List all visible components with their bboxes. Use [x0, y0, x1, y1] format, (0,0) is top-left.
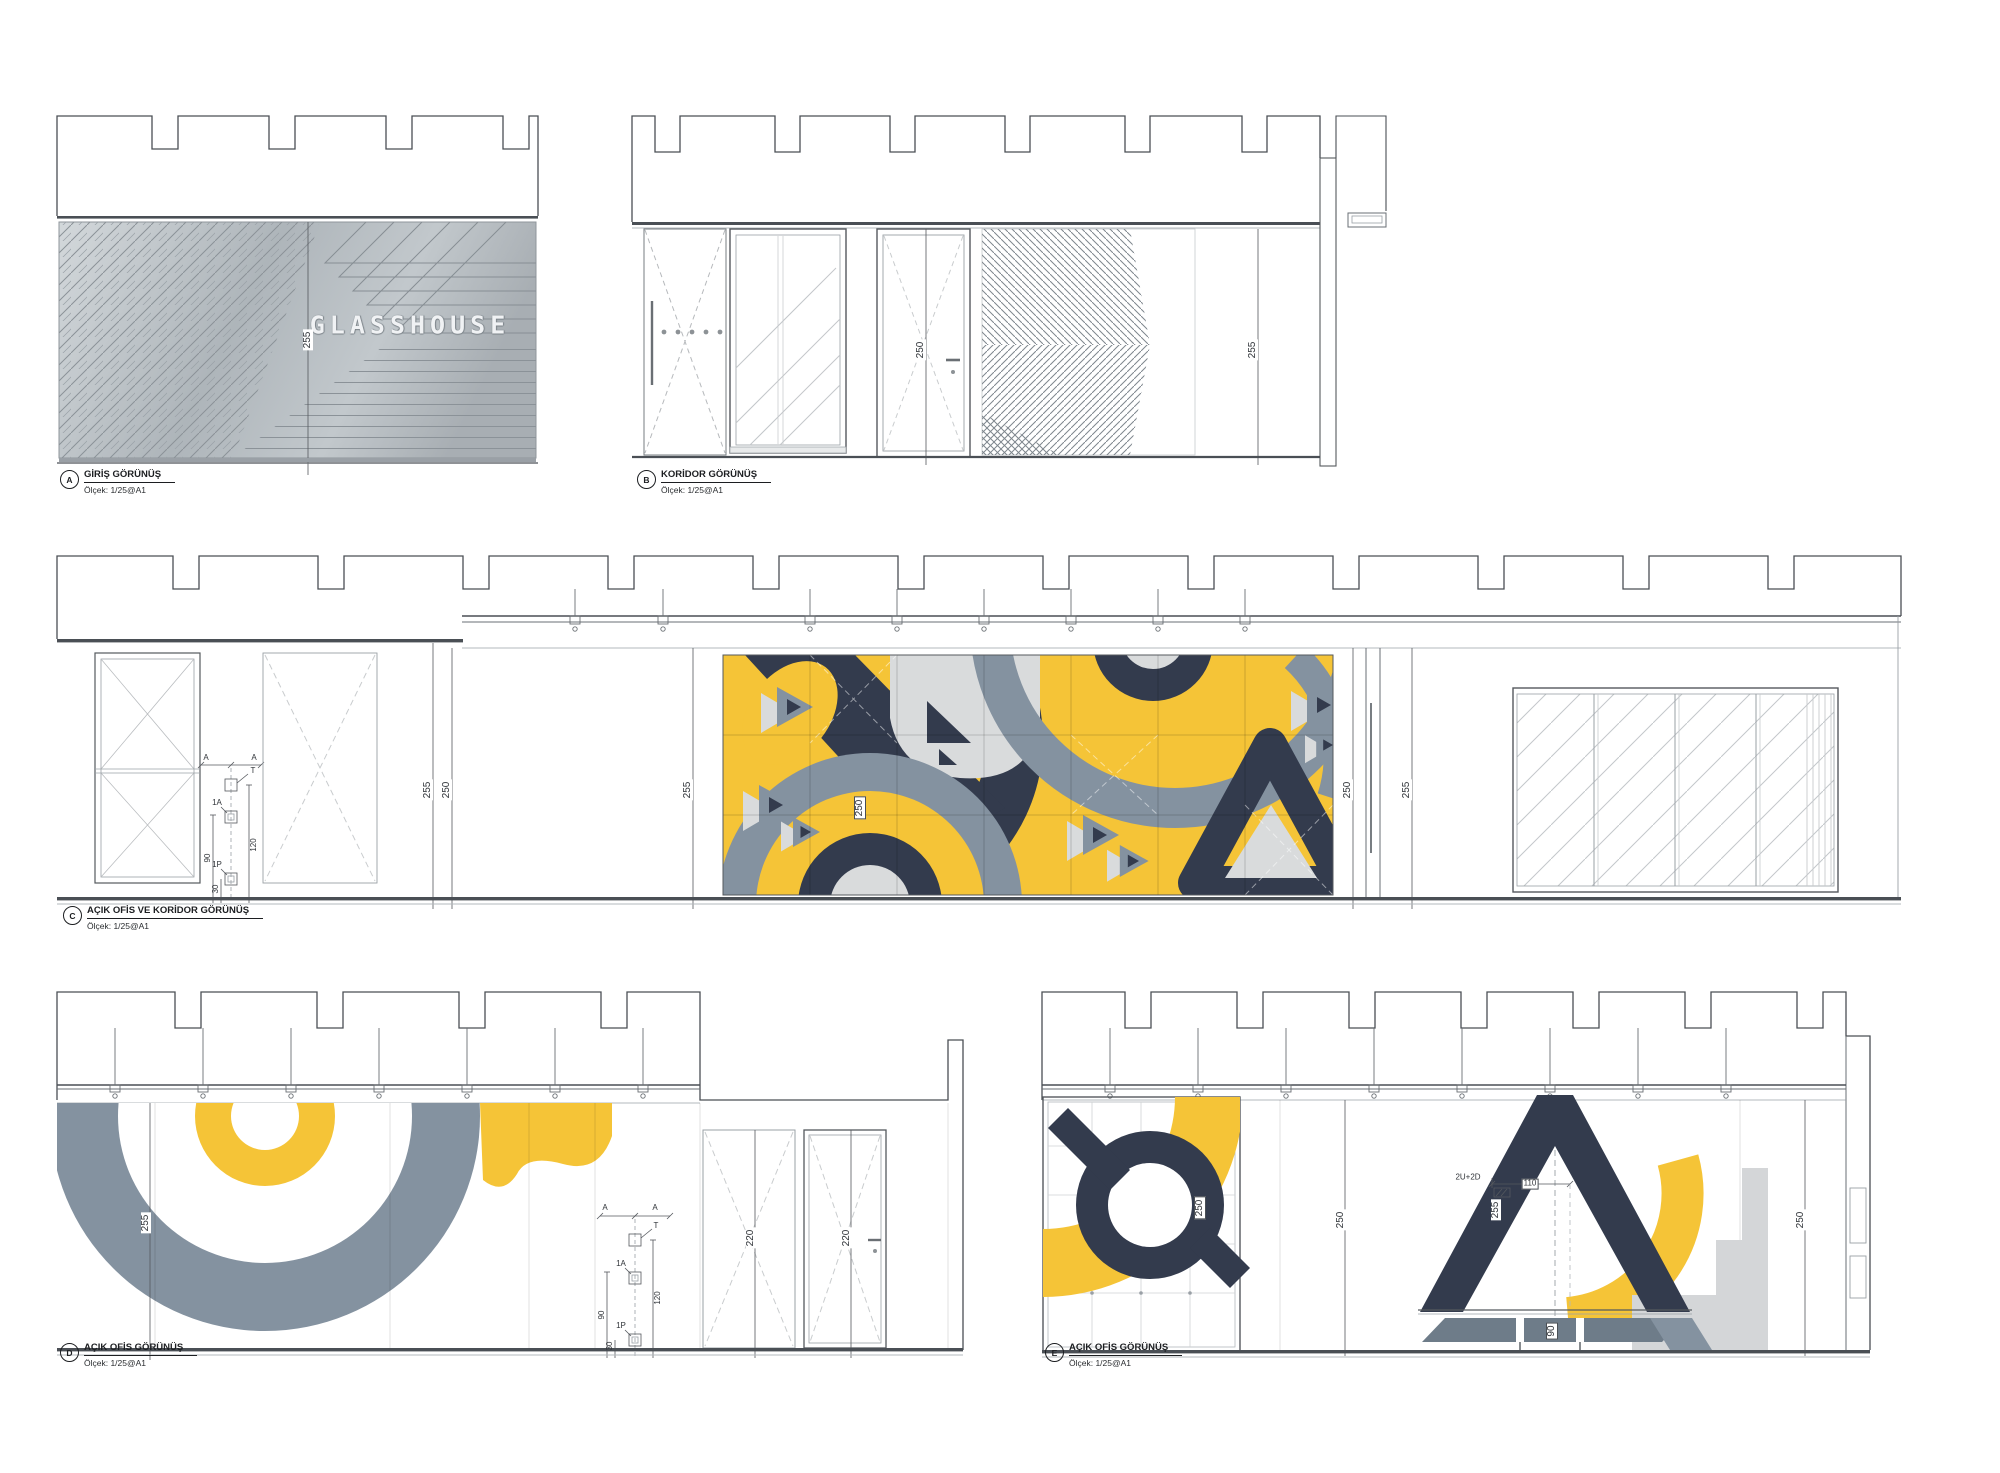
glass-door	[644, 229, 726, 455]
callout-label: T	[251, 767, 256, 775]
drawing-title: AÇIK OFİS GÖRÜNÜŞ	[1069, 1342, 1182, 1356]
parapet-right	[1336, 116, 1386, 211]
dim-label: 255	[1248, 340, 1258, 361]
dim-label: 255	[303, 330, 313, 351]
narrow-panel	[1366, 648, 1380, 897]
drawing-title: AÇIK OFİS GÖRÜNÜŞ	[84, 1342, 197, 1356]
storage-cabinet	[95, 653, 200, 883]
drawing-title: GİRİŞ GÖRÜNÜŞ	[84, 469, 175, 483]
fixture-callout	[597, 1213, 673, 1358]
callout-label: 1P	[616, 1322, 626, 1330]
parapet-outline	[57, 116, 538, 216]
title-block-b: B KORİDOR GÖRÜNÜŞ Ölçek: 1/25@A1	[637, 469, 771, 495]
title-block-c: C AÇIK OFİS VE KORİDOR GÖRÜNÜŞ Ölçek: 1/…	[63, 905, 263, 931]
title-block-d: D AÇIK OFİS GÖRÜNÜŞ Ölçek: 1/25@A1	[60, 1342, 197, 1368]
drawing-scale: Ölçek: 1/25@A1	[84, 1356, 197, 1368]
elevation-d: 255 220 220 A A T 1A 1P 120 90 30 D AÇIK…	[55, 988, 965, 1373]
dim-label: 250	[1194, 1197, 1206, 1220]
callout-dim: 120	[250, 838, 258, 851]
chevron-wall	[982, 229, 1195, 455]
callout-label: 1A	[212, 799, 222, 807]
callout-dim: 120	[654, 1291, 662, 1304]
dim-label: 255	[1402, 780, 1412, 801]
drawing-scale: Ölçek: 1/25@A1	[87, 919, 263, 931]
floor-strip	[59, 458, 536, 462]
glasshouse-sign: GLASSHOUSE	[310, 311, 511, 340]
drawing-scale: Ölçek: 1/25@A1	[1069, 1356, 1182, 1368]
mural	[718, 553, 1360, 938]
bracket	[1348, 213, 1386, 227]
dim-label: 250	[1336, 1210, 1346, 1231]
column	[1320, 158, 1336, 466]
ceiling-hangers	[1105, 1028, 1731, 1098]
pivot-panel	[263, 653, 377, 883]
dim-label: 250	[442, 780, 452, 801]
callout-dim: 90	[598, 1311, 606, 1320]
callout-label: T	[654, 1222, 659, 1230]
fixture-callout	[198, 762, 264, 903]
elevation-b: 250 255 B KORİDOR GÖRÜNÜŞ Ölçek: 1/25@A1	[630, 113, 1390, 493]
drawing-ref-badge: C	[63, 906, 82, 925]
ceiling-line	[57, 216, 538, 219]
dim-label: 250	[916, 340, 926, 361]
ceiling-hangers	[570, 589, 1250, 631]
ceiling-hangers	[110, 1028, 648, 1098]
dim-label: 255	[683, 780, 693, 801]
elevation-d-linework	[55, 988, 965, 1373]
drawing-title: AÇIK OFİS VE KORİDOR GÖRÜNÜŞ	[87, 905, 263, 919]
dim-label: 250	[854, 797, 866, 820]
callout-label: A	[251, 754, 256, 762]
callout-dim: 90	[204, 854, 212, 863]
glass-partition	[1513, 688, 1838, 892]
drawing-scale: Ölçek: 1/25@A1	[661, 483, 771, 495]
drawing-scale: Ölçek: 1/25@A1	[84, 483, 175, 495]
dim-label: 220	[746, 1228, 756, 1249]
title-block-e: E AÇIK OFİS GÖRÜNÜŞ Ölçek: 1/25@A1	[1045, 1342, 1182, 1368]
parapet-outline	[632, 116, 1320, 222]
drawing-title: KORİDOR GÖRÜNÜŞ	[661, 469, 771, 483]
elevation-sheet: GLASSHOUSE 255 A GİRİŞ GÖRÜNÜŞ Ölçek: 1/…	[0, 0, 2000, 1473]
drawing-ref-badge: A	[60, 470, 79, 489]
parapet-outline	[57, 556, 1901, 639]
ceiling-line	[632, 222, 1320, 225]
wall-mural	[55, 988, 948, 1348]
q-panel	[1043, 1097, 1250, 1352]
callout-dim: 30	[212, 885, 220, 894]
callout-label: 1A	[616, 1260, 626, 1268]
elevation-e: 250 250 255 2U+2D 110 90 250 E AÇIK OFİS…	[1040, 988, 1875, 1373]
dim-label: 90	[1546, 1322, 1558, 1339]
dim-label: 110	[1522, 1179, 1539, 1190]
callout-label: A	[652, 1204, 657, 1212]
drawing-ref-badge: D	[60, 1343, 79, 1362]
dim-label: 255	[423, 780, 433, 801]
elevation-c-linework	[55, 553, 1905, 938]
elevation-a: GLASSHOUSE 255 A GİRİŞ GÖRÜNÜŞ Ölçek: 1/…	[55, 113, 540, 493]
drawing-ref-badge: B	[637, 470, 656, 489]
title-block-a: A GİRİŞ GÖRÜNÜŞ Ölçek: 1/25@A1	[60, 469, 175, 495]
dim-label: 250	[1343, 780, 1353, 801]
callout-label: 1P	[212, 861, 222, 869]
elevation-c: 255 250 255 250 250 255 A A T 1A 1P 120 …	[55, 553, 1905, 938]
dim-label: 255	[1491, 1200, 1501, 1221]
elevation-b-linework	[630, 113, 1390, 493]
dim-label: 220	[842, 1228, 852, 1249]
callout-label: A	[203, 754, 208, 762]
glass-panel	[730, 229, 846, 453]
callout-dim: 30	[606, 1342, 614, 1351]
dim-label: 250	[1796, 1210, 1806, 1231]
fixing-note: 2U+2D	[1454, 1174, 1481, 1183]
callout-label: A	[602, 1204, 607, 1212]
dim-label: 255	[141, 1213, 151, 1234]
drawing-ref-badge: E	[1045, 1343, 1064, 1362]
elevation-a-linework	[55, 113, 540, 493]
floor-line	[57, 897, 1901, 900]
bulkhead-line	[57, 639, 463, 642]
